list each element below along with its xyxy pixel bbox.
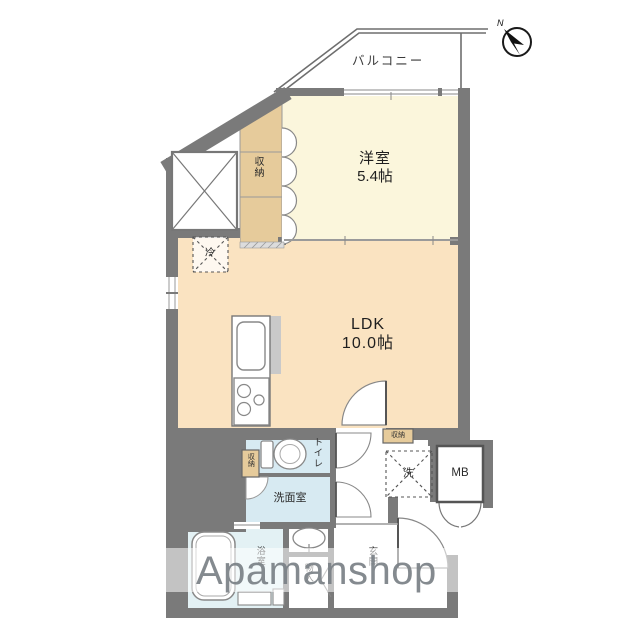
shaft-x-box [172,152,237,230]
compass-icon [503,28,531,56]
bathroom-door [234,522,260,529]
kitchen-sink [237,322,265,370]
western-room-floor [276,92,458,241]
toilet-door [336,433,371,468]
washroom-door [336,482,371,517]
toilet-fixture [261,439,306,469]
refrigerator-space [193,237,228,272]
balcony-railing [274,29,488,96]
meter-box [437,446,483,527]
entrance-door [398,518,448,568]
washbasin-fixture [293,528,325,552]
floor-plan-canvas: バルコニー N 洋室 5.4帖 LDK 10.0帖 収納 冷 トイレ 洗面室 収… [0,0,640,640]
closet-threshold-hatch [240,242,284,248]
storage-hall-box [383,429,413,443]
floor-plan-drawing [0,0,640,640]
storage-left-box [242,450,259,477]
washer-space [386,451,432,497]
